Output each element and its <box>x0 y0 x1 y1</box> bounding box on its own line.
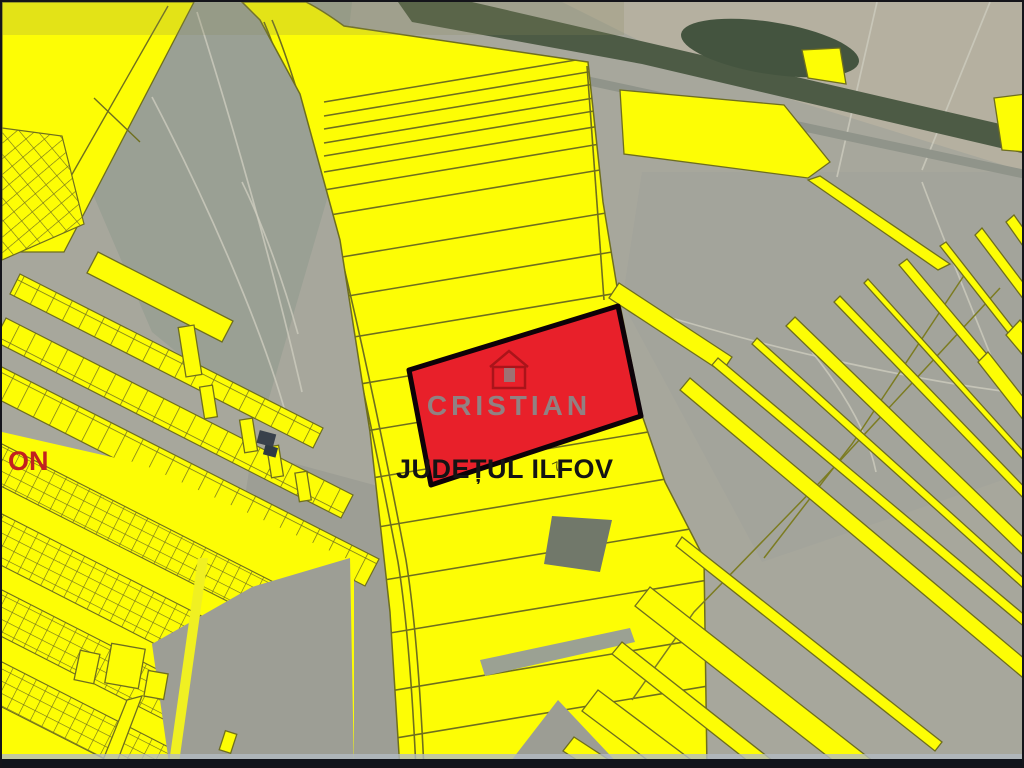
top-tint-band <box>2 2 624 35</box>
watermark-brand-text: CRISTIAN <box>427 390 591 421</box>
county-label: JUDEȚUL ILFOV <box>396 454 614 484</box>
truncated-place-label: ON <box>8 446 49 476</box>
field-patch <box>544 516 612 572</box>
bottom-border-bar <box>2 759 1024 768</box>
cadastral-map-viewport[interactable]: CRISTIAN JUDEȚUL ILFOV 7 ON <box>0 0 1024 768</box>
bottom-divider <box>2 754 1024 759</box>
map-canvas[interactable]: CRISTIAN JUDEȚUL ILFOV 7 ON <box>2 2 1024 768</box>
